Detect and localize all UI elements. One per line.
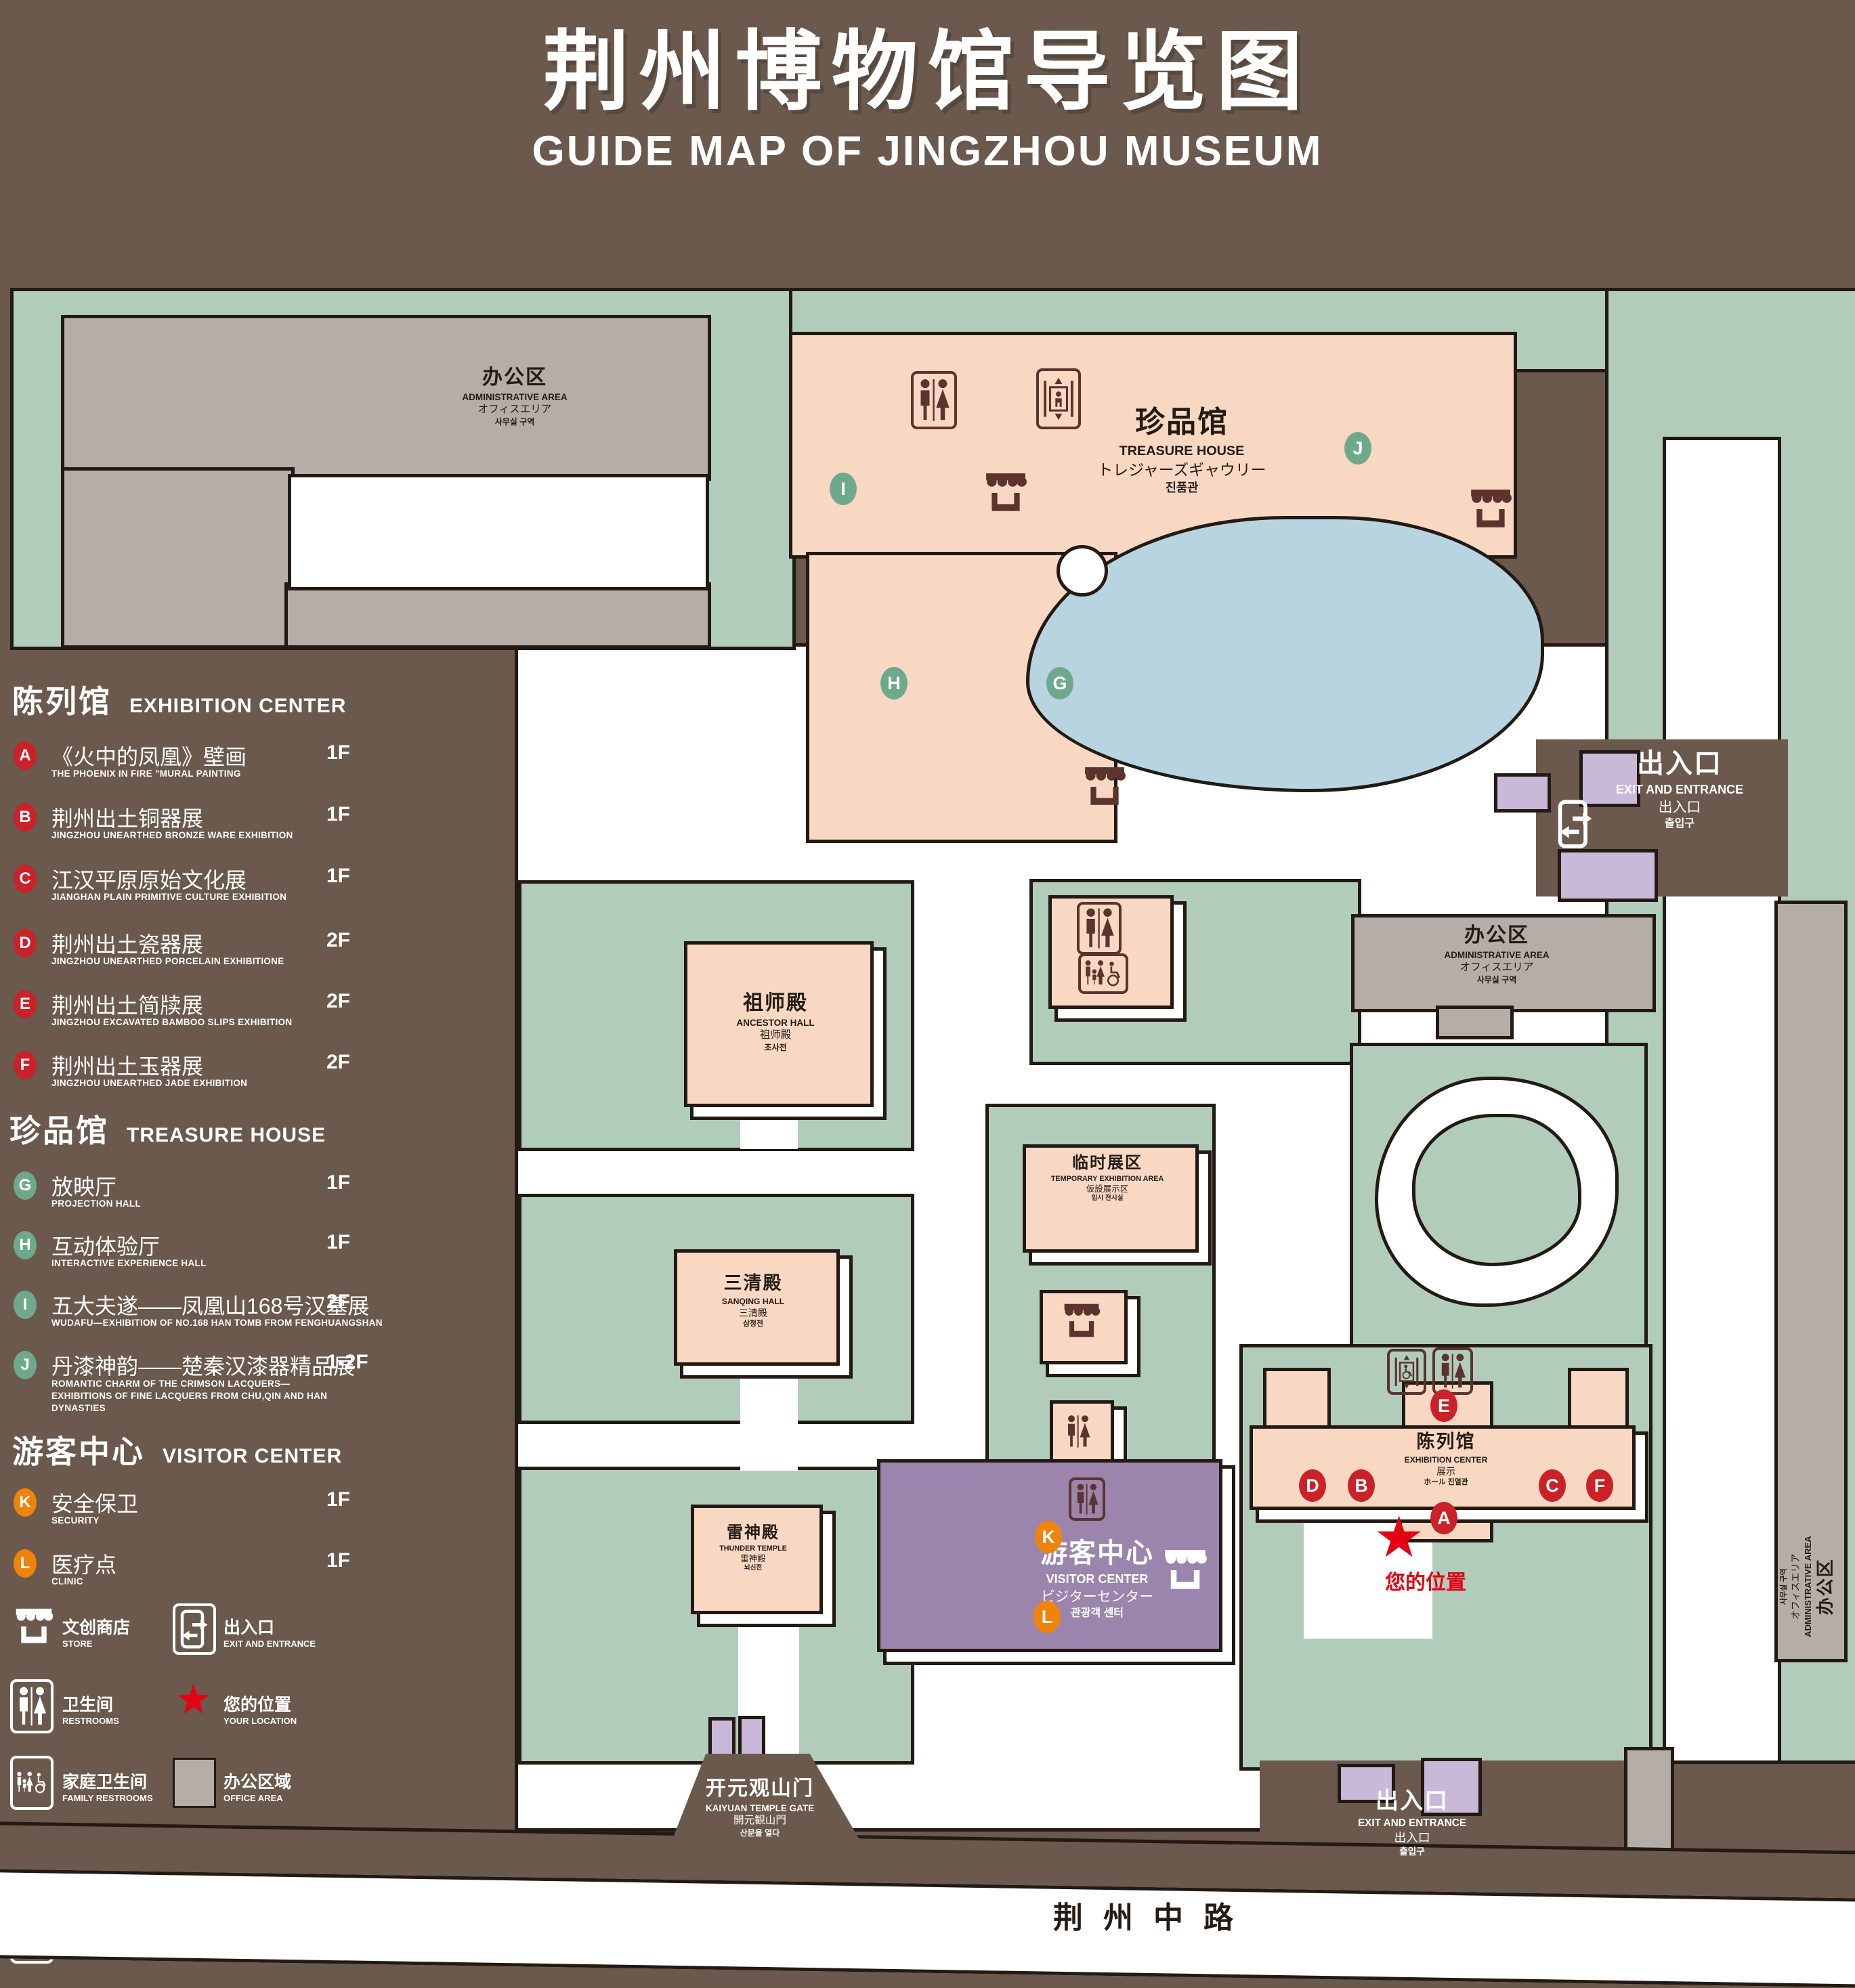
item-en: WUDAFU—EXHIBITION OF NO.168 HAN TOMB FRO… xyxy=(51,1318,383,1328)
admin-nw-label: 办公区 ADMINISTRATIVE AREA オフィスエリア 사무실 구역 xyxy=(379,364,650,428)
label-ko: 사무실 구역 xyxy=(1477,975,1517,986)
label-en: VISITOR CENTER xyxy=(1046,1572,1149,1588)
item-zh: 《火中的凤凰》壁画 xyxy=(51,740,247,771)
label-zh: 办公区 xyxy=(482,364,547,391)
item-floor: 1-2F xyxy=(326,1351,368,1374)
elevator-icon xyxy=(1036,368,1081,429)
label-ja: 三清殿 xyxy=(739,1307,767,1320)
item-floor: 1F xyxy=(326,1549,350,1572)
temporary-area-label: 临时展区 TEMPORARY EXHIBITION AREA 仮設展示区 임시 … xyxy=(972,1152,1243,1203)
map-badge-L: L xyxy=(1033,1601,1061,1633)
map-road-east xyxy=(1663,437,1781,1764)
item-floor: 1F xyxy=(326,865,350,888)
map-badge-B: B xyxy=(1348,1469,1375,1502)
symbol-zh: 办公区域 xyxy=(223,1769,291,1793)
label-ko: 출입구 xyxy=(1399,1846,1425,1858)
label-en: KAIYUAN TEMPLE GATE xyxy=(706,1802,814,1815)
item-badge: G xyxy=(14,1171,37,1200)
store-icon xyxy=(983,473,1028,515)
legend-section-exhibition: 陈列馆EXHIBITION CENTER xyxy=(12,677,346,722)
symbol-en: RESTROOMS xyxy=(62,1716,119,1726)
symbol-zh: 卫生间 xyxy=(62,1691,113,1716)
label-ja: 仮設展示区 xyxy=(1086,1184,1128,1194)
label-ja: ビジターセンター xyxy=(1041,1588,1153,1606)
item-badge: J xyxy=(14,1351,37,1379)
item-zh: 安全保卫 xyxy=(51,1487,138,1518)
admin-east-label: 사무실 구역 オフィスエリア ADMINISTRATIVE AREA 办公区 xyxy=(1779,1407,1837,1766)
item-zh: 互动体验厅 xyxy=(51,1230,160,1261)
thunder-temple-label: 雷神殿 THUNDER TEMPLE 雷神殿 뇌신전 xyxy=(618,1522,889,1573)
label-ko: 산문을 열다 xyxy=(740,1828,780,1839)
map-badge-K: K xyxy=(1035,1521,1062,1553)
item-zh: 江汉平原原始文化展 xyxy=(51,863,247,894)
symbol-zh: 文创商店 xyxy=(62,1614,130,1639)
label-ja: オフィスエリア xyxy=(478,403,552,417)
legend-section-visitor: 游客中心VISITOR CENTER xyxy=(12,1427,342,1472)
your-location-star: ★ xyxy=(1373,1509,1424,1565)
sanqing-hall-label: 三清殿 SANQING HALL 三清殿 삼청전 xyxy=(618,1272,889,1328)
family-restroom-icon xyxy=(1078,953,1128,994)
label-zh: 珍品馆 xyxy=(1135,403,1229,442)
symbol-en: EXIT AND ENTRANCE xyxy=(223,1639,316,1649)
accessible-elevator-icon xyxy=(1387,1349,1426,1395)
item-badge: A xyxy=(14,741,37,770)
item-badge: D xyxy=(14,929,37,957)
symbol-zh: 您的位置 xyxy=(223,1691,291,1716)
label-en: EXHIBITION CENTER xyxy=(1405,1454,1488,1465)
item-floor: 1F xyxy=(326,1231,350,1254)
item-floor: 2F xyxy=(326,1291,350,1314)
label-zh: 三清殿 xyxy=(724,1272,783,1296)
item-zh: 丹漆神韵——楚秦汉漆器精品展 xyxy=(51,1349,355,1381)
legend-section-treasure: 珍品馆TREASURE HOUSE xyxy=(9,1106,326,1151)
symbol-en: YOUR LOCATION xyxy=(223,1716,297,1726)
symbol-en: STORE xyxy=(62,1639,93,1649)
label-ja: 雷神殿 xyxy=(740,1553,765,1564)
map-corridor xyxy=(740,1102,798,1149)
item-badge: L xyxy=(14,1549,37,1578)
item-en: JIANGHAN PLAIN PRIMITIVE CULTURE EXHIBIT… xyxy=(51,892,286,902)
item-zh: 五大夫遂——凤凰山168号汉墓展 xyxy=(51,1289,369,1320)
building-admin-nw-wing xyxy=(284,582,711,649)
map-badge-C: C xyxy=(1539,1469,1566,1502)
label-ja: オフィスエリア xyxy=(1460,961,1534,975)
label-en: THUNDER TEMPLE xyxy=(719,1544,787,1553)
label-zh: 临时展区 xyxy=(1072,1152,1143,1174)
item-floor: 1F xyxy=(326,741,350,764)
item-floor: 2F xyxy=(326,1051,350,1074)
item-zh: 荆州出土简牍展 xyxy=(51,989,203,1020)
map-corridor xyxy=(740,1362,798,1471)
map-badge-I: I xyxy=(830,473,857,505)
store-icon xyxy=(14,1606,54,1648)
label-ko: 임시 전시실 xyxy=(1092,1194,1124,1203)
item-en: ROMANTIC CHARM OF THE CRIMSON LACQUERS—E… xyxy=(51,1378,343,1415)
item-badge: B xyxy=(14,803,37,831)
page-subtitle: GUIDE MAP OF JINGZHOU MUSEUM xyxy=(0,127,1855,175)
map-exit-structure xyxy=(1558,849,1658,902)
symbol-zh: 出入口 xyxy=(223,1614,274,1639)
map-water-islet xyxy=(1057,545,1108,597)
symbol-en: FAMILY RESTROOMS xyxy=(62,1793,153,1803)
label-ja: 出入口 xyxy=(1394,1830,1430,1846)
map-courtyard xyxy=(288,474,709,590)
label-ko: 사무실 구역 xyxy=(495,417,535,428)
restroom-icon xyxy=(911,371,957,429)
office-area-swatch xyxy=(173,1758,216,1808)
item-en: JINGZHOU UNEARTHED JADE EXHIBITION xyxy=(51,1078,247,1088)
restroom-icon xyxy=(1077,902,1122,955)
item-en: INTERACTIVE EXPERIENCE HALL xyxy=(51,1258,207,1268)
symbol-en: OFFICE AREA xyxy=(223,1793,283,1803)
item-floor: 2F xyxy=(326,990,350,1013)
item-en: PROJECTION HALL xyxy=(51,1198,141,1209)
map-badge-A: A xyxy=(1430,1502,1457,1534)
label-en: ADMINISTRATIVE AREA xyxy=(1802,1536,1814,1637)
label-ja: 展示 xyxy=(1436,1465,1455,1478)
label-zh: 开元观山门 xyxy=(706,1775,814,1802)
item-en: JINGZHOU UNEARTHED PORCELAIN EXHIBITIONE xyxy=(51,956,284,966)
item-badge: H xyxy=(14,1231,37,1259)
label-ja: 祖师殿 xyxy=(760,1029,792,1043)
item-floor: 1F xyxy=(326,1171,350,1194)
map-badge-F: F xyxy=(1586,1469,1613,1502)
building-admin-mid-tab xyxy=(1436,1006,1514,1039)
map-badge-E: E xyxy=(1430,1389,1457,1422)
label-en: SANQING HALL xyxy=(722,1296,784,1307)
section-title-zh: 游客中心 xyxy=(12,1434,145,1469)
location-star-icon: ★ xyxy=(175,1679,213,1721)
label-en: TEMPORARY EXHIBITION AREA xyxy=(1051,1174,1164,1184)
section-title-en: VISITOR CENTER xyxy=(163,1445,342,1467)
label-en: ADMINISTRATIVE AREA xyxy=(1444,949,1549,961)
label-ja: オフィスエリア xyxy=(1789,1553,1802,1620)
map-badge-D: D xyxy=(1299,1469,1326,1502)
exit-ne-label: 出入口 EXIT AND ENTRANCE 出入口 출입구 xyxy=(1585,746,1774,831)
admin-mid-label: 办公区 ADMINISTRATIVE AREA オフィスエリア 사무실 구역 xyxy=(1361,922,1632,986)
label-en: EXIT AND ENTRANCE xyxy=(1616,782,1743,798)
item-en: SECURITY xyxy=(51,1515,100,1526)
store-icon xyxy=(1162,1549,1208,1593)
label-zh: 雷神殿 xyxy=(727,1522,780,1544)
label-en: TREASURE HOUSE xyxy=(1120,442,1245,460)
label-ko: 진품관 xyxy=(1166,480,1199,496)
section-title-en: EXHIBITION CENTER xyxy=(129,695,346,717)
label-zh: 办公区 xyxy=(1814,1558,1837,1615)
restroom-icon xyxy=(1432,1347,1473,1395)
label-ko: 출입구 xyxy=(1665,817,1694,831)
symbol-zh: 家庭卫生间 xyxy=(62,1769,147,1793)
item-zh: 医疗点 xyxy=(51,1548,116,1579)
map-badge-G: G xyxy=(1046,667,1073,699)
item-en: THE PHOENIX IN FIRE "MURAL PAINTING xyxy=(51,769,241,779)
section-title-en: TREASURE HOUSE xyxy=(127,1124,326,1146)
item-badge: I xyxy=(14,1291,37,1319)
section-title-zh: 珍品馆 xyxy=(9,1113,109,1148)
label-zh: 出入口 xyxy=(1637,746,1722,782)
restroom-icon xyxy=(1069,1477,1105,1521)
label-ko: 삼청전 xyxy=(743,1319,763,1328)
treasure-house-label: 珍品馆 TREASURE HOUSE トレジャーズギャウリー 진품관 xyxy=(1046,403,1317,496)
building-admin-nw-wing xyxy=(61,467,295,649)
label-zh: 陈列馆 xyxy=(1417,1430,1476,1454)
item-zh: 荆州出土铜器展 xyxy=(51,802,203,833)
exit-icon xyxy=(173,1603,216,1655)
label-ja: トレジャーズギャウリー xyxy=(1097,460,1266,480)
label-ko: 조사전 xyxy=(764,1043,786,1054)
label-en: EXIT AND ENTRANCE xyxy=(1358,1817,1466,1830)
map-exit-structure xyxy=(1494,773,1551,813)
page-title: 荆州博物馆导览图 xyxy=(0,1,1855,127)
item-badge: K xyxy=(14,1488,37,1517)
label-zh: 出入口 xyxy=(1376,1786,1449,1817)
ancestor-hall-label: 祖师殿 ANCESTOR HALL 祖师殿 조사전 xyxy=(640,990,911,1054)
label-ja: 出入口 xyxy=(1659,798,1701,817)
family-restroom-icon xyxy=(10,1756,54,1810)
section-title-zh: 陈列馆 xyxy=(12,684,112,719)
exit-icon xyxy=(1555,799,1596,849)
label-ko: 사무실 구역 xyxy=(1779,1568,1789,1605)
exit-south-label: 出入口 EXIT AND ENTRANCE 出入口 출입구 xyxy=(1304,1786,1520,1858)
item-badge: C xyxy=(14,865,37,893)
item-en: JINGZHOU EXCAVATED BAMBOO SLIPS EXHIBITI… xyxy=(51,1017,292,1027)
gate-label: 开元观山门 KAIYUAN TEMPLE GATE 開元観山門 산문을 열다 xyxy=(652,1775,868,1839)
item-zh: 荆州出土玉器展 xyxy=(51,1050,203,1081)
item-floor: 1F xyxy=(326,803,350,826)
item-en: CLINIC xyxy=(51,1576,83,1586)
item-zh: 放映厅 xyxy=(51,1170,116,1201)
restroom-icon xyxy=(10,1679,54,1733)
store-icon xyxy=(1468,489,1513,531)
label-ko: 관광객 센터 xyxy=(1071,1606,1124,1620)
label-ko: ホール 진열관 xyxy=(1424,1477,1468,1487)
item-floor: 2F xyxy=(326,929,350,952)
label-ja: 開元観山門 xyxy=(733,1814,786,1828)
label-zh: 祖师殿 xyxy=(743,990,808,1017)
store-icon xyxy=(1082,766,1127,808)
map-badge-H: H xyxy=(880,667,908,699)
label-en: ADMINISTRATIVE AREA xyxy=(462,391,567,404)
map-garden-center xyxy=(1412,1114,1581,1266)
item-zh: 荆州出土瓷器展 xyxy=(51,928,203,959)
item-floor: 1F xyxy=(326,1488,350,1511)
label-en: ANCESTOR HALL xyxy=(736,1017,814,1029)
label-ko: 뇌신전 xyxy=(744,1564,762,1573)
item-badge: E xyxy=(14,990,37,1018)
item-badge: F xyxy=(14,1051,37,1079)
store-icon xyxy=(1062,1303,1101,1340)
item-en: JINGZHOU UNEARTHED BRONZE WARE EXHIBITIO… xyxy=(51,830,293,840)
restroom-icon xyxy=(1065,1414,1092,1449)
your-location-text: 您的位置 xyxy=(1355,1565,1497,1595)
map-badge-J: J xyxy=(1344,432,1371,464)
road-name: 荆州中路 xyxy=(1053,1893,1254,1937)
label-zh: 办公区 xyxy=(1464,922,1529,949)
